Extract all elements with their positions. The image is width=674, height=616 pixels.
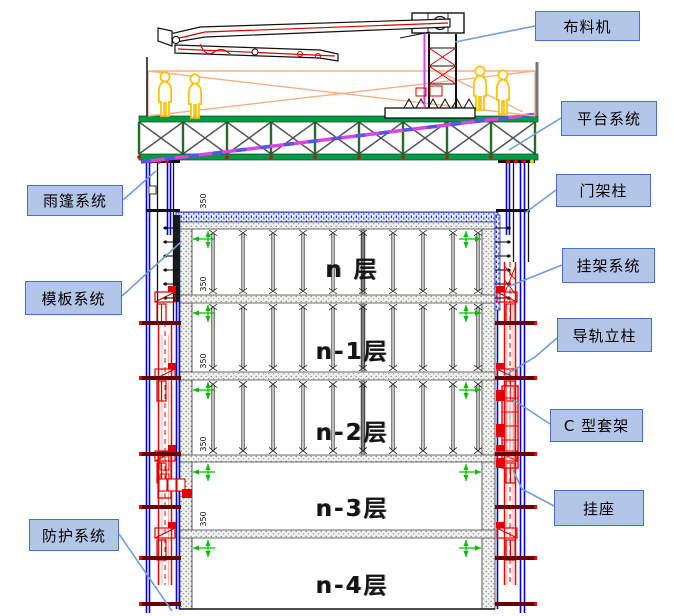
- boom-base-bolts: [400, 99, 476, 108]
- callout-gantry-column: 门架柱: [556, 174, 651, 207]
- fresh-top-slab: [176, 212, 498, 222]
- placing-boom: [158, 13, 476, 118]
- slab-n3: [179, 530, 495, 538]
- leader-protection: [119, 534, 172, 611]
- right-climbing-rig: [495, 163, 537, 613]
- slab-n: [179, 295, 495, 303]
- callout-label: 挂座: [583, 498, 615, 519]
- callout-guide-rail-column: 导轨立柱: [557, 318, 652, 352]
- callout-hanging-seat: 挂座: [554, 490, 644, 526]
- callout-platform-system: 平台系统: [561, 101, 657, 136]
- callout-hanging-frame-system: 挂架系统: [562, 248, 655, 283]
- callout-label: 模板系统: [41, 288, 105, 309]
- floor-label-n4: n-4层: [316, 566, 389, 600]
- left-wall: [179, 215, 192, 609]
- floor-label-n2: n-2层: [316, 413, 389, 447]
- callout-label: 导轨立柱: [572, 325, 636, 346]
- callout-label: C 型套架: [564, 415, 629, 436]
- leader-guide-rail: [504, 338, 557, 376]
- dim-text: 350: [199, 436, 208, 451]
- callout-label: 门架柱: [579, 180, 627, 201]
- leader-gantry-column: [525, 190, 556, 213]
- dim-text: 350: [199, 276, 208, 291]
- dim-text: 350: [199, 193, 208, 208]
- right-wall: [482, 215, 495, 609]
- callout-c-type-frame: C 型套架: [550, 409, 643, 442]
- slab-n1: [179, 372, 495, 380]
- floor-label-n1: n-1层: [316, 332, 389, 366]
- callout-label: 挂架系统: [576, 255, 640, 276]
- leader-hanging-seat: [513, 470, 554, 506]
- dim-text: 350: [199, 353, 208, 368]
- callout-canopy-system: 雨篷系统: [27, 185, 123, 216]
- callout-label: 平台系统: [577, 108, 641, 129]
- boom-pedestal: [385, 108, 475, 118]
- callout-label: 雨篷系统: [43, 190, 107, 211]
- floor-label-n: n 层: [325, 250, 378, 284]
- floor-label-n3: n-3层: [316, 489, 389, 523]
- callout-label: 布料机: [563, 16, 611, 37]
- slab-n2: [179, 455, 495, 462]
- callout-label: 防护系统: [42, 525, 106, 546]
- leader-placing-boom: [455, 26, 535, 42]
- callout-placing-boom: 布料机: [535, 11, 640, 41]
- callout-formwork-system: 模板系统: [25, 281, 122, 315]
- platform-truss: [137, 114, 538, 164]
- diagram-canvas: 350 350 350 350 350: [0, 0, 674, 616]
- boom-arms: [158, 19, 450, 61]
- callout-protection-system: 防护系统: [29, 519, 119, 551]
- dim-text: 350: [199, 511, 208, 526]
